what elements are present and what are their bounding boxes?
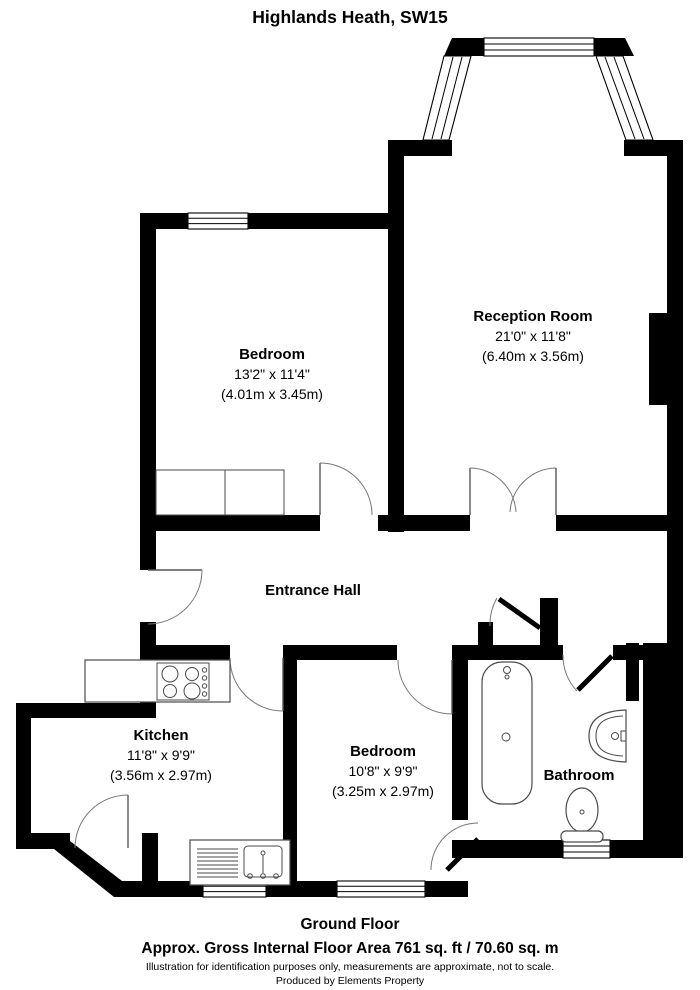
plan-title: Highlands Heath, SW15 [252,7,448,27]
kitchen-rear-door [75,795,128,848]
floorplan-drawing: Highlands Heath, SW15 Reception Room 21'… [0,0,700,990]
front-door [148,570,202,624]
kitchen-dims-metric: (3.56m x 2.97m) [110,767,212,783]
kitchen-dims-imperial: 11'8" x 9'9" [127,747,195,763]
bay-corner-right [594,38,634,56]
bed1-top-wall-b [248,213,396,229]
reception-label: Reception Room 21'0" x 11'8" (6.40m x 3.… [473,308,592,364]
bedroom2-dims-imperial: 10'8" x 9'9" [349,763,418,779]
bath-inner-stub [626,643,639,701]
reception-dims-imperial: 21'0" x 11'8" [495,328,571,344]
produced-by: Produced by Elements Property [276,975,425,987]
entrance-hall-label: Entrance Hall [265,582,361,599]
lobby-stub-right [540,598,558,655]
bedroom1-name: Bedroom [239,346,305,363]
kitchen-name: Kitchen [133,727,188,744]
hall-divider-a [140,515,320,531]
toilet [561,788,603,842]
bed2-bottom-wall-b [425,881,468,897]
bed1-door [320,463,372,515]
hall-divider-b [378,515,406,531]
bedroom2-dims-metric: (3.25m x 2.97m) [332,783,434,799]
floor-label: Ground Floor [300,916,399,933]
bathroom-label: Bathroom [544,767,615,784]
wash-basin [589,710,626,762]
bedroom1-dims-imperial: 13'2" x 11'4" [234,366,310,382]
lobby-stub-left [478,622,493,655]
lobby-door [490,598,540,628]
kitchen-left-wall [16,703,31,849]
bathroom-door [563,655,612,691]
reception-dims-metric: (6.40m x 3.56m) [482,348,584,364]
kitchen-label: Kitchen 11'8" x 9'9" (3.56m x 2.97m) [110,727,212,783]
bed2-bottom-wall-a [297,881,337,897]
bedroom2-label: Bedroom 10'8" x 9'9" (3.25m x 2.97m) [332,743,434,799]
bed2-right-wall [452,645,468,820]
bed1-closet [156,470,284,515]
reception-name: Reception Room [473,308,592,325]
chimney-breast [649,313,667,405]
kitchen-sink [190,840,290,885]
bay-window-right [596,56,653,140]
kitchen-top-left-wall [16,703,146,718]
kitchen-door [230,658,283,711]
bay-window-top [484,38,594,56]
bedroom2-name: Bedroom [350,743,416,760]
bathroom-window [563,840,610,858]
bath-right-wall [643,643,683,843]
reception-left-wall [388,140,404,532]
fixtures [85,470,626,885]
reception-double-doors [470,468,556,515]
hall-divider-d [556,515,683,531]
hall-divider-c [404,515,470,531]
footer: Ground Floor Approx. Gross Internal Floo… [141,916,558,987]
bay-corner-left [444,38,484,56]
bay-window-left [423,56,471,140]
right-outer-wall [667,140,683,658]
bedroom1-label: Bedroom 13'2" x 11'4" (4.01m x 3.45m) [221,346,323,402]
floorplan-page: Highlands Heath, SW15 Reception Room 21'… [0,0,700,990]
disclaimer: Illustration for identification purposes… [146,961,554,973]
bed2-top-wall [297,645,397,660]
kitchen-hob [85,660,230,702]
bottom-left-angled-wall [54,833,142,897]
bed1-window [188,213,248,229]
area-line: Approx. Gross Internal Floor Area 761 sq… [141,940,558,957]
bed2-door [398,660,452,714]
bed2-window [337,881,425,897]
bedroom1-dims-metric: (4.01m x 3.45m) [221,386,323,402]
kitchen-top-wall [140,645,230,660]
bath-bottom-wall-b [610,840,683,858]
bathtub [482,662,532,804]
